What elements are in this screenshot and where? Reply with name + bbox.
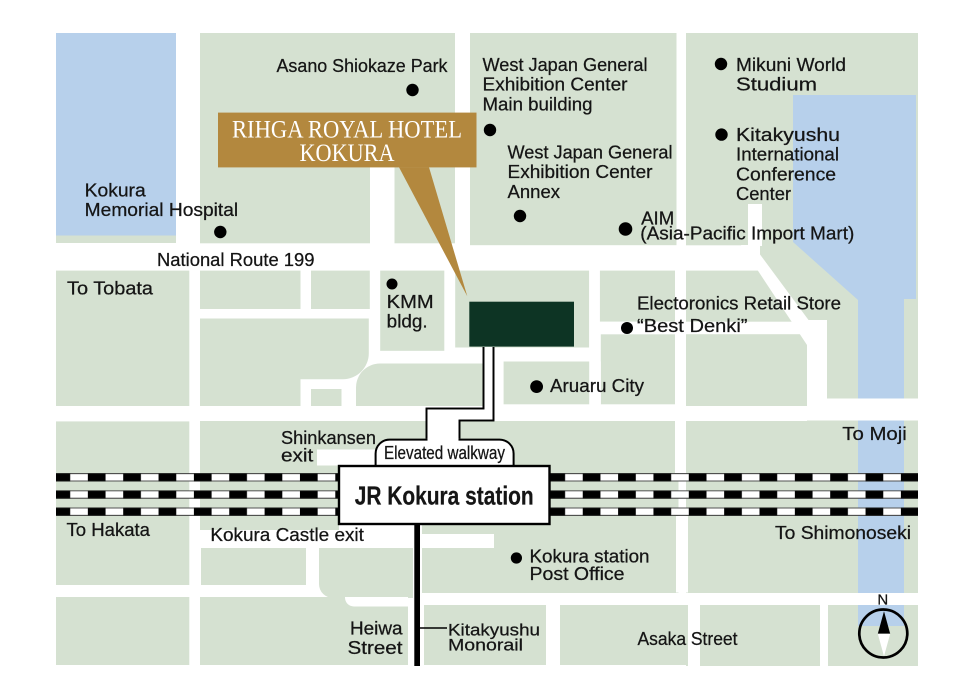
svg-text:Mikuni World: Mikuni World (736, 55, 846, 75)
svg-text:To Moji: To Moji (842, 424, 907, 444)
svg-text:Main building: Main building (483, 94, 593, 114)
svg-text:Kokura: Kokura (85, 180, 147, 200)
svg-text:Exhibition Center: Exhibition Center (483, 75, 628, 95)
svg-text:exit: exit (281, 446, 313, 466)
svg-text:West Japan General: West Japan General (508, 143, 673, 163)
svg-text:Studium: Studium (736, 75, 817, 95)
svg-text:Conference: Conference (736, 164, 836, 184)
svg-text:bldg.: bldg. (387, 312, 428, 332)
svg-text:(Asia-Pacific Import Mart): (Asia-Pacific Import Mart) (640, 224, 854, 244)
svg-text:Heiwa: Heiwa (350, 619, 404, 639)
svg-text:Kitakyushu: Kitakyushu (736, 125, 840, 145)
svg-text:Kokura Castle exit: Kokura Castle exit (210, 525, 364, 545)
svg-text:Annex: Annex (508, 182, 561, 202)
svg-text:Monorail: Monorail (448, 636, 523, 655)
svg-text:Memorial Hospital: Memorial Hospital (85, 200, 239, 220)
svg-text:To Hakata: To Hakata (67, 520, 152, 540)
svg-text:Street: Street (348, 638, 403, 658)
svg-text:“Best Denki”: “Best Denki” (637, 316, 748, 336)
svg-text:JR Kokura station: JR Kokura station (355, 480, 534, 510)
svg-text:Center: Center (736, 184, 791, 204)
svg-text:Post Office: Post Office (530, 564, 625, 584)
svg-text:Electoronics Retail Store: Electoronics Retail Store (637, 294, 841, 314)
svg-text:To Tobata: To Tobata (67, 279, 154, 299)
svg-text:Elevated walkway: Elevated walkway (384, 443, 505, 463)
svg-text:To Shimonoseki: To Shimonoseki (775, 523, 911, 543)
svg-text:National Route 199: National Route 199 (157, 250, 315, 270)
svg-text:N: N (877, 592, 888, 609)
svg-text:International: International (736, 145, 839, 165)
svg-text:Aruaru City: Aruaru City (550, 376, 644, 396)
svg-text:Exhibition Center: Exhibition Center (508, 162, 653, 182)
svg-text:Asaka Street: Asaka Street (638, 629, 738, 649)
svg-text:West Japan General: West Japan General (483, 55, 648, 75)
svg-text:Asano Shiokaze Park: Asano Shiokaze Park (277, 56, 449, 76)
svg-text:KMM: KMM (387, 292, 434, 312)
svg-text:KOKURA: KOKURA (300, 140, 395, 167)
